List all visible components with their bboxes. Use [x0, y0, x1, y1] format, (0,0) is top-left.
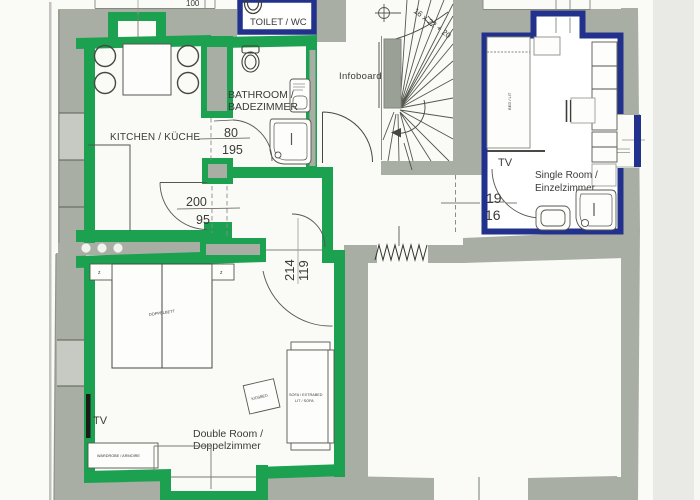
svg-text:KITCHEN / KÜCHE: KITCHEN / KÜCHE	[110, 131, 200, 143]
svg-text:Single Room /: Single Room /	[535, 170, 598, 181]
svg-text:BED / LIT: BED / LIT	[507, 92, 512, 110]
svg-text:200: 200	[186, 195, 207, 209]
svg-text:80: 80	[224, 126, 238, 140]
svg-text:119: 119	[296, 260, 311, 281]
svg-text:95: 95	[196, 213, 210, 227]
svg-text:TV: TV	[93, 415, 108, 427]
svg-text:TOILET / WC: TOILET / WC	[250, 17, 307, 28]
svg-text:LIT / SOFA: LIT / SOFA	[295, 399, 314, 403]
svg-text:BATHROOM /: BATHROOM /	[228, 89, 294, 101]
svg-text:19: 19	[486, 190, 502, 206]
svg-text:WARDROBE / ARMOIRE: WARDROBE / ARMOIRE	[97, 454, 140, 458]
svg-text:195: 195	[222, 143, 243, 157]
svg-text:214: 214	[282, 259, 297, 281]
svg-text:TV: TV	[498, 157, 513, 169]
svg-text:Double Room /: Double Room /	[193, 428, 263, 440]
svg-text:Infoboard: Infoboard	[339, 71, 382, 82]
svg-text:BADEZIMMER: BADEZIMMER	[228, 101, 298, 113]
svg-text:SOFA / EXTRABED: SOFA / EXTRABED	[289, 393, 323, 397]
svg-text:16: 16	[485, 207, 501, 223]
svg-text:100: 100	[186, 0, 200, 8]
